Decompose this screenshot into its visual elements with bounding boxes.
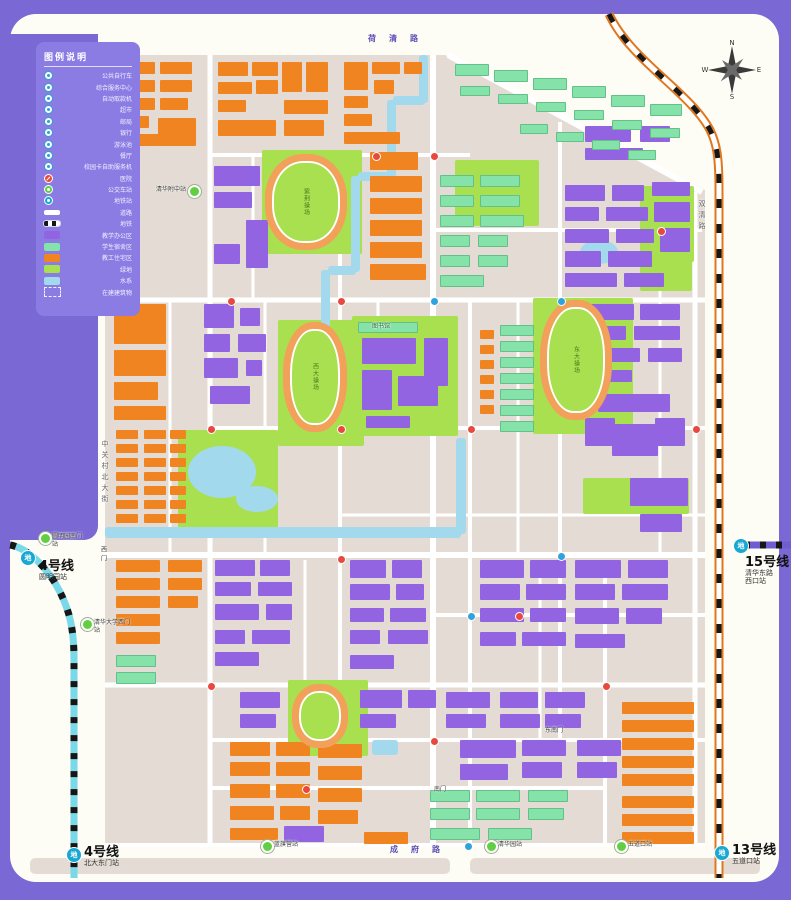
housing-building	[370, 264, 426, 280]
academic-building	[350, 560, 386, 578]
legend-row: 游泳池	[44, 138, 132, 149]
dormitory-building	[478, 235, 508, 247]
housing-building	[370, 220, 422, 236]
metro-logo-line4-yuanmingyuan: 地	[20, 550, 36, 566]
housing-building	[252, 62, 278, 76]
line4-lower-station: 北大东门站	[84, 860, 119, 868]
legend-icon-zone	[44, 174, 61, 183]
legend-label: 地铁	[61, 219, 132, 228]
academic-building	[360, 690, 402, 708]
housing-building	[168, 578, 202, 590]
housing-building	[318, 766, 362, 780]
legend-row: 学生宿舍区	[44, 241, 132, 252]
legend-icon-zone	[44, 117, 61, 126]
legend-row: 超市	[44, 104, 132, 115]
academic-building	[545, 692, 585, 708]
academic-building	[545, 714, 581, 728]
dormitory-building	[455, 64, 489, 76]
line13-station: 五道口站	[732, 858, 776, 866]
academic-building	[350, 655, 394, 669]
legend-icon-zone	[44, 128, 61, 137]
housing-building	[114, 406, 166, 420]
housing-building	[170, 430, 186, 439]
legend-row: 综合服务中心	[44, 81, 132, 92]
academic-building	[565, 273, 617, 287]
legend-label: 道路	[61, 208, 132, 217]
academic-building	[612, 185, 644, 201]
legend-icon-zone	[44, 221, 61, 226]
poi-marker	[337, 425, 346, 434]
academic-building	[240, 692, 280, 708]
area-swatch	[44, 277, 60, 285]
stadium-track: 紫荆操场	[265, 154, 347, 250]
housing-building	[306, 62, 328, 92]
housing-building	[116, 444, 138, 453]
compass-rose: N S W E	[701, 38, 763, 100]
campus-map-screenshot: { "palette":{"frame":"#7a69d4","page":"#…	[0, 0, 791, 900]
legend-row: 在建建筑物	[44, 286, 132, 297]
poi-marker	[207, 682, 216, 691]
line4-lower-label: 4号线 北大东门站	[84, 846, 119, 868]
legend-label: 游泳池	[61, 140, 132, 149]
legend-icon-zone	[44, 254, 61, 262]
academic-building	[500, 692, 538, 708]
housing-building	[170, 486, 186, 495]
housing-building	[144, 430, 166, 439]
academic-building	[215, 630, 245, 644]
academic-building	[480, 560, 524, 578]
legend-row: 教学办公区	[44, 229, 132, 240]
academic-building	[612, 424, 658, 456]
housing-building	[370, 198, 422, 214]
legend-label: 学生宿舍区	[61, 242, 132, 251]
legend-label: 餐厅	[61, 151, 132, 160]
housing-building	[284, 100, 328, 114]
housing-building	[372, 62, 400, 74]
legend-label: 公共自行车	[61, 71, 132, 80]
housing-building	[230, 828, 278, 840]
poi-marker	[557, 297, 566, 306]
housing-building	[144, 458, 166, 467]
water-body	[328, 266, 356, 275]
academic-building	[246, 220, 268, 268]
poi-marker	[430, 297, 439, 306]
legend-row: 医院	[44, 173, 132, 184]
legend-icon-zone	[44, 162, 61, 171]
legend-row: 邮局	[44, 116, 132, 127]
area-swatch	[44, 265, 60, 273]
dormitory-building	[460, 86, 490, 96]
academic-building	[606, 207, 648, 221]
legend-icon-zone	[44, 210, 61, 215]
housing-building	[116, 578, 160, 590]
academic-building	[598, 394, 670, 412]
academic-building	[500, 714, 540, 728]
housing-building	[144, 514, 166, 523]
academic-building	[575, 634, 625, 648]
dormitory-building	[556, 132, 584, 142]
bus-stop-label: 清华附中站	[156, 186, 186, 194]
poi-marker	[557, 552, 566, 561]
housing-building	[144, 500, 166, 509]
housing-building	[622, 774, 694, 786]
dormitory-building	[498, 94, 528, 104]
housing-building	[404, 62, 422, 74]
legend-row: 地铁	[44, 218, 132, 229]
poi-marker	[692, 425, 701, 434]
housing-building	[170, 444, 186, 453]
academic-building	[215, 582, 251, 596]
academic-building	[214, 244, 240, 264]
line4-upper-label: 4号线 圆明园站	[39, 560, 74, 582]
academic-building	[252, 630, 290, 644]
housing-building	[344, 96, 368, 108]
metro-symbol	[44, 221, 60, 226]
academic-building	[408, 690, 436, 708]
ring-icon	[44, 117, 53, 126]
ring-icon	[44, 94, 53, 103]
dormitory-building	[572, 86, 606, 98]
academic-building	[204, 304, 234, 328]
bus-stop-label: 蓝旗营站	[274, 841, 298, 849]
housing-building	[168, 560, 202, 572]
dormitory-building	[440, 195, 474, 207]
academic-building	[652, 182, 690, 196]
poi-marker	[602, 682, 611, 691]
dormitory-building	[500, 325, 534, 336]
housing-building	[116, 458, 138, 467]
academic-building	[522, 762, 562, 778]
dormitory-building	[480, 195, 520, 207]
housing-building	[318, 810, 358, 824]
academic-building	[622, 584, 668, 600]
academic-building	[480, 632, 516, 646]
legend-label: 绿地	[61, 265, 132, 274]
housing-building	[114, 350, 166, 376]
legend-icon-zone	[44, 140, 61, 149]
housing-building	[276, 762, 310, 776]
legend-label: 邮局	[61, 117, 132, 126]
housing-building	[622, 796, 694, 808]
dormitory-building	[430, 808, 470, 820]
legend-label: 医院	[61, 174, 132, 183]
water-body	[351, 176, 360, 272]
academic-building	[526, 584, 566, 600]
bus-stop-marker	[261, 840, 274, 853]
academic-building	[648, 348, 682, 362]
housing-building	[622, 756, 694, 768]
academic-building	[204, 334, 230, 352]
housing-building	[218, 62, 248, 76]
housing-building	[480, 375, 494, 384]
academic-building	[350, 630, 380, 644]
housing-building	[344, 132, 400, 144]
poi-marker	[302, 785, 311, 794]
academic-building	[624, 273, 664, 287]
housing-building	[230, 762, 270, 776]
academic-building	[362, 370, 392, 410]
compass-e: E	[757, 66, 761, 74]
water-body	[393, 96, 425, 105]
housing-building	[622, 738, 694, 750]
dormitory-building	[116, 655, 156, 667]
poi-marker	[430, 152, 439, 161]
poi-marker	[657, 227, 666, 236]
poi-marker	[372, 152, 381, 161]
dormitory-building	[440, 235, 470, 247]
south-strip	[470, 858, 760, 874]
ring-icon	[44, 128, 53, 137]
legend-row: 自动取款机	[44, 93, 132, 104]
academic-building	[460, 764, 508, 780]
housing-building	[480, 330, 494, 339]
housing-building	[218, 120, 276, 136]
legend-row: 绿地	[44, 264, 132, 275]
dormitory-building	[650, 128, 680, 138]
housing-building	[230, 742, 270, 756]
academic-building	[585, 418, 615, 446]
academic-building	[350, 608, 384, 622]
academic-building	[214, 192, 252, 208]
legend-row: 教工住宅区	[44, 252, 132, 263]
housing-building	[218, 100, 246, 112]
area-swatch	[44, 243, 60, 251]
legend: 图例说明 公共自行车综合服务中心自动取款机超市邮局银行游泳池餐厅校园卡自助服务机…	[36, 42, 140, 316]
academic-building	[634, 326, 680, 340]
academic-building	[640, 304, 680, 320]
housing-building	[344, 114, 372, 126]
road-label: 成府路	[390, 844, 453, 855]
legend-icon-zone	[44, 287, 61, 297]
academic-building	[366, 416, 410, 428]
housing-building	[370, 176, 422, 192]
housing-building	[280, 806, 310, 820]
housing-building	[480, 405, 494, 414]
academic-building	[240, 308, 260, 326]
academic-building	[362, 338, 416, 364]
ring-icon	[44, 162, 53, 171]
legend-icon-zone	[44, 196, 61, 205]
legend-row: 银行	[44, 127, 132, 138]
poi-marker	[464, 842, 473, 851]
housing-building	[144, 472, 166, 481]
metro-logo-line15: 地	[733, 538, 749, 554]
bus-stop-marker	[485, 840, 498, 853]
legend-row: 餐厅	[44, 150, 132, 161]
housing-building	[218, 82, 252, 94]
housing-building	[170, 472, 186, 481]
legend-label: 在建建筑物	[61, 288, 132, 297]
dormitory-building	[476, 790, 520, 802]
academic-building	[565, 229, 609, 243]
housing-building	[374, 80, 394, 94]
area-swatch	[44, 231, 60, 239]
dormitory-building	[528, 808, 564, 820]
academic-building	[577, 740, 621, 756]
housing-building	[364, 832, 408, 844]
academic-building	[530, 560, 566, 578]
housing-building	[160, 62, 192, 74]
housing-building	[160, 80, 192, 92]
metro-logo-line4-beidadongmen: 地	[66, 847, 82, 863]
stadium-track: 西大操场	[283, 322, 347, 432]
academic-building	[565, 185, 605, 201]
compass-s: S	[730, 93, 735, 100]
poi-marker	[227, 297, 236, 306]
dormitory-building	[533, 78, 567, 90]
legend-icon-zone	[44, 94, 61, 103]
legend-label: 地铁站	[61, 196, 132, 205]
poi-marker	[207, 425, 216, 434]
academic-building	[575, 584, 615, 600]
dormitory-building	[500, 389, 534, 400]
under-construction-symbol	[44, 287, 61, 297]
dormitory-building	[430, 828, 480, 840]
ring-icon	[44, 105, 53, 114]
academic-building	[460, 740, 516, 758]
dormitory-building	[440, 255, 470, 267]
academic-building	[215, 652, 259, 666]
legend-row: 道路	[44, 207, 132, 218]
housing-building	[230, 806, 274, 820]
housing-building	[116, 430, 138, 439]
academic-building	[390, 608, 426, 622]
housing-building	[256, 80, 278, 94]
legend-label: 自动取款机	[61, 94, 132, 103]
poi-marker	[467, 425, 476, 434]
dormitory-building	[480, 215, 524, 227]
housing-building	[158, 118, 196, 146]
housing-building	[480, 345, 494, 354]
housing-building	[230, 784, 270, 798]
academic-building	[575, 560, 621, 578]
water-body	[456, 438, 466, 534]
dormitory-building	[440, 175, 474, 187]
bus-stop-marker	[39, 532, 52, 545]
dormitory-building	[500, 421, 534, 432]
ring-icon	[44, 140, 53, 149]
poi-marker	[430, 737, 439, 746]
academic-building	[608, 251, 652, 267]
line13-label: 13号线 五道口站	[732, 844, 776, 866]
dormitory-building	[440, 215, 474, 227]
hospital-icon	[44, 174, 53, 183]
bus-stop-marker	[81, 618, 94, 631]
ring-icon	[44, 151, 53, 160]
water-body	[321, 270, 330, 328]
dormitory-building	[520, 124, 548, 134]
gate-label: 西门	[99, 546, 107, 564]
housing-building	[480, 360, 494, 369]
housing-building	[344, 62, 368, 90]
water-body	[372, 740, 398, 755]
gate-label: 南门	[434, 786, 446, 794]
academic-building	[360, 714, 396, 728]
metro-logo-line13: 地	[714, 845, 730, 861]
legend-icon-zone	[44, 265, 61, 273]
housing-building	[370, 242, 422, 258]
dormitory-building	[440, 275, 484, 287]
legend-row: 校园卡自助服务机	[44, 161, 132, 172]
legend-row: 公交车站	[44, 184, 132, 195]
academic-building	[626, 608, 662, 624]
academic-building	[398, 376, 438, 406]
stadium-label: 东大操场	[572, 346, 581, 374]
poi-marker	[467, 612, 476, 621]
bus-stop-label: 圆明园南门站	[52, 533, 84, 548]
housing-building	[144, 486, 166, 495]
legend-label: 公交车站	[61, 185, 132, 194]
road-label: 荷清路	[368, 33, 431, 44]
poi-marker	[515, 612, 524, 621]
bus-stop-marker	[188, 185, 201, 198]
legend-title: 图例说明	[44, 50, 132, 67]
housing-building	[284, 120, 324, 136]
legend-row: 公共自行车	[44, 70, 132, 81]
legend-icon-zone	[44, 231, 61, 239]
bus-stop-marker	[615, 840, 628, 853]
legend-icon-zone	[44, 83, 61, 92]
legend-label: 综合服务中心	[61, 83, 132, 92]
gate-label: 东南门	[545, 727, 563, 735]
stadium-track	[292, 684, 348, 748]
academic-building	[630, 478, 688, 506]
dormitory-building	[500, 405, 534, 416]
housing-building	[318, 788, 362, 802]
stadium-label: 西大操场	[311, 363, 320, 391]
legend-row: 地铁站	[44, 195, 132, 206]
housing-building	[144, 444, 166, 453]
compass-w: W	[702, 66, 709, 74]
housing-building	[622, 702, 694, 714]
legend-rows: 公共自行车综合服务中心自动取款机超市邮局银行游泳池餐厅校园卡自助服务机医院公交车…	[44, 70, 132, 298]
legend-icon-zone	[44, 185, 61, 194]
housing-building	[170, 500, 186, 509]
academic-building	[258, 582, 292, 596]
metro-icon	[44, 196, 53, 205]
dormitory-building	[650, 104, 682, 116]
ring-icon	[44, 83, 53, 92]
academic-building	[565, 251, 601, 267]
academic-building	[577, 762, 617, 778]
housing-building	[116, 514, 138, 523]
academic-building	[215, 604, 259, 620]
academic-building	[392, 560, 422, 578]
academic-building	[640, 514, 682, 532]
housing-building	[114, 382, 158, 400]
housing-building	[170, 458, 186, 467]
legend-icon-zone	[44, 71, 61, 80]
bus-stop-label: 清华大学西门站	[94, 619, 130, 634]
compass-n: N	[729, 39, 734, 47]
ring-icon	[44, 71, 53, 80]
academic-building	[522, 740, 566, 756]
academic-building	[238, 334, 266, 352]
legend-label: 超市	[61, 105, 132, 114]
line15-label: 15号线 清华东路 西口站	[745, 556, 789, 586]
academic-building	[655, 418, 685, 446]
housing-building	[170, 514, 186, 523]
legend-label: 校园卡自助服务机	[61, 162, 132, 171]
legend-icon-zone	[44, 243, 61, 251]
feature-label: 图书馆	[372, 323, 390, 331]
line15-station-line2: 西口站	[745, 578, 789, 586]
housing-building	[168, 596, 198, 608]
academic-building	[204, 358, 238, 378]
academic-building	[388, 630, 428, 644]
housing-building	[622, 814, 694, 826]
academic-building	[210, 386, 250, 404]
